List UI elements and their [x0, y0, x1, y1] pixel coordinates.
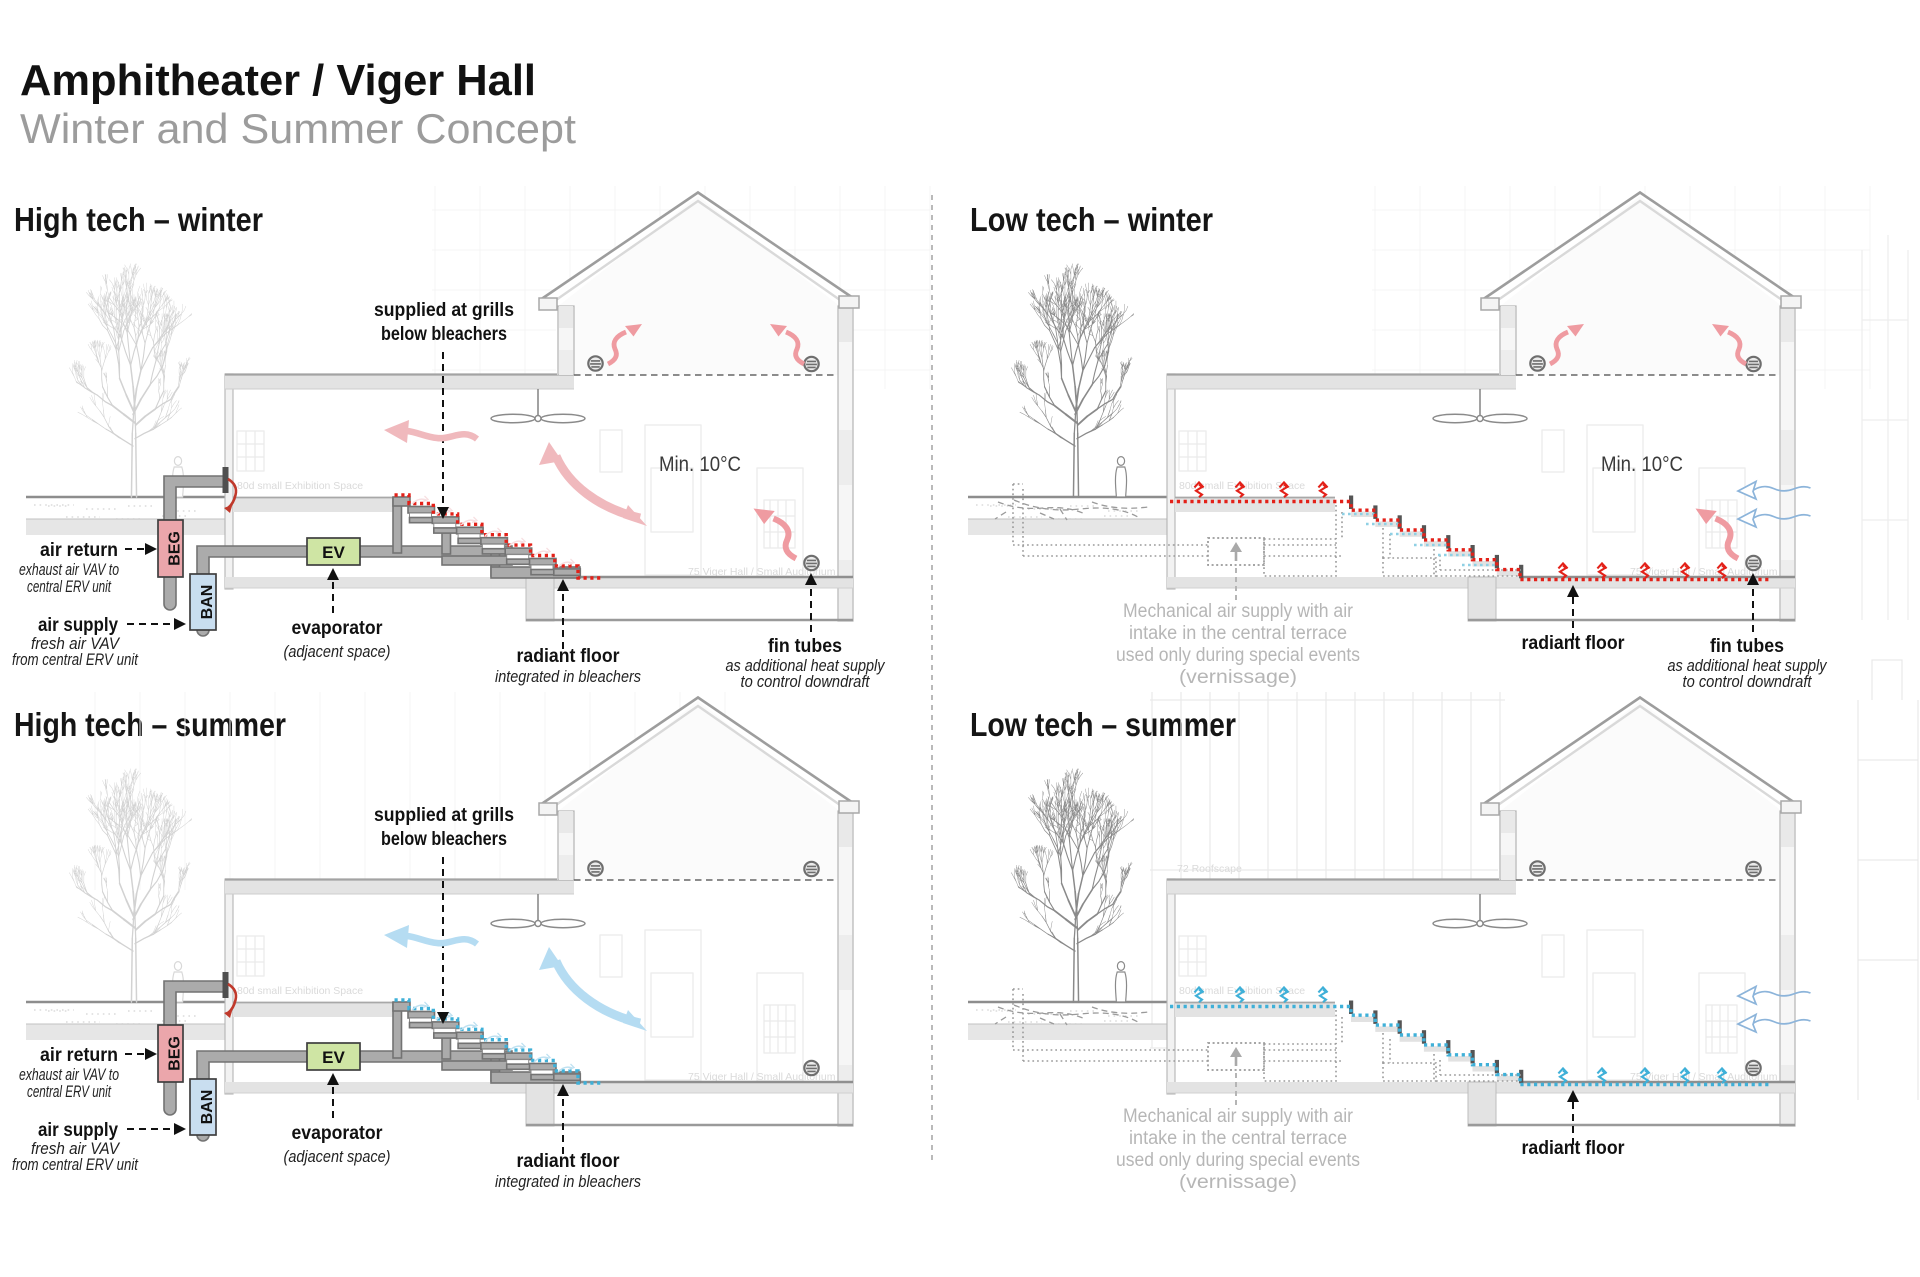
- svg-text:Min. 10°C: Min. 10°C: [1601, 453, 1683, 476]
- svg-text:Low tech – winter: Low tech – winter: [970, 201, 1213, 238]
- svg-text:Low tech – summer: Low tech – summer: [970, 706, 1236, 743]
- svg-text:72 Roofscape: 72 Roofscape: [1177, 863, 1242, 875]
- svg-text:Amphitheater / Viger Hall: Amphitheater / Viger Hall: [20, 56, 536, 105]
- svg-text:High tech – summer: High tech – summer: [14, 706, 286, 743]
- svg-text:Winter and Summer Concept: Winter and Summer Concept: [20, 105, 576, 152]
- svg-text:High tech – winter: High tech – winter: [14, 201, 263, 238]
- svg-text:Min. 10°C: Min. 10°C: [659, 453, 741, 476]
